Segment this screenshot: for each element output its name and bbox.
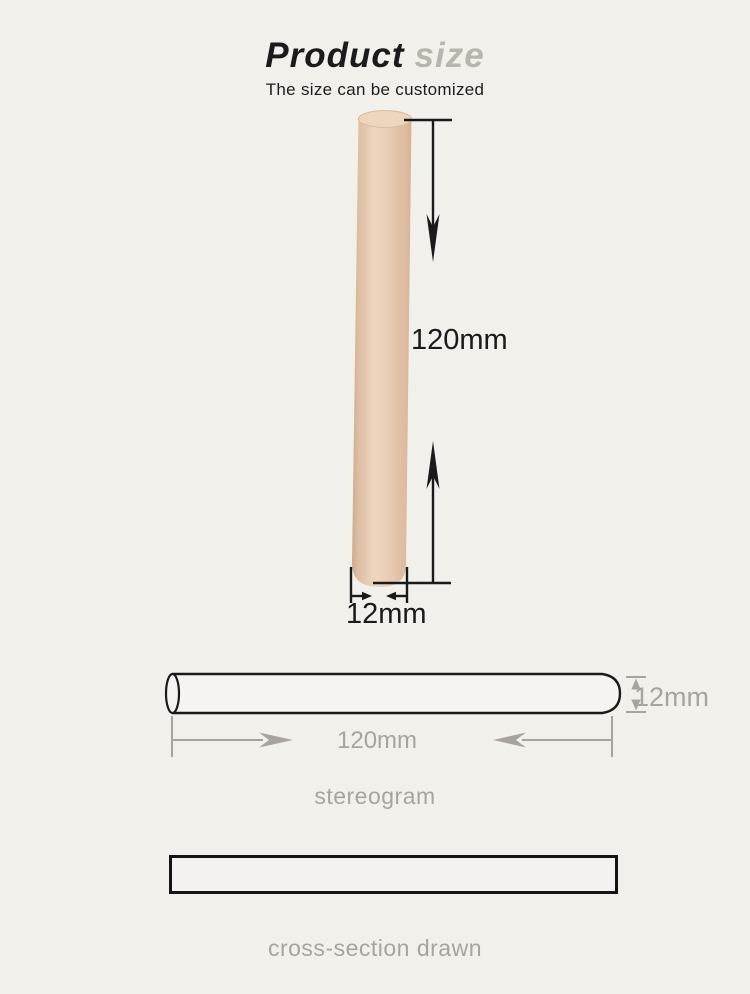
cross-section-caption: cross-section drawn xyxy=(0,935,750,962)
cross-section-rectangle xyxy=(169,855,618,894)
stereogram-length-label: 120mm xyxy=(337,727,417,755)
diagram-canvas xyxy=(0,0,750,994)
stereogram-caption: stereogram xyxy=(0,783,750,810)
horizontal-dowel-outline xyxy=(166,674,620,713)
vertical-dowel xyxy=(352,111,412,587)
stereogram-diameter-label: 12mm xyxy=(634,682,709,713)
front-diameter-label: 12mm xyxy=(346,598,427,631)
front-length-label: 120mm xyxy=(411,324,508,357)
product-size-infographic: Productsize The size can be customized xyxy=(0,0,750,994)
